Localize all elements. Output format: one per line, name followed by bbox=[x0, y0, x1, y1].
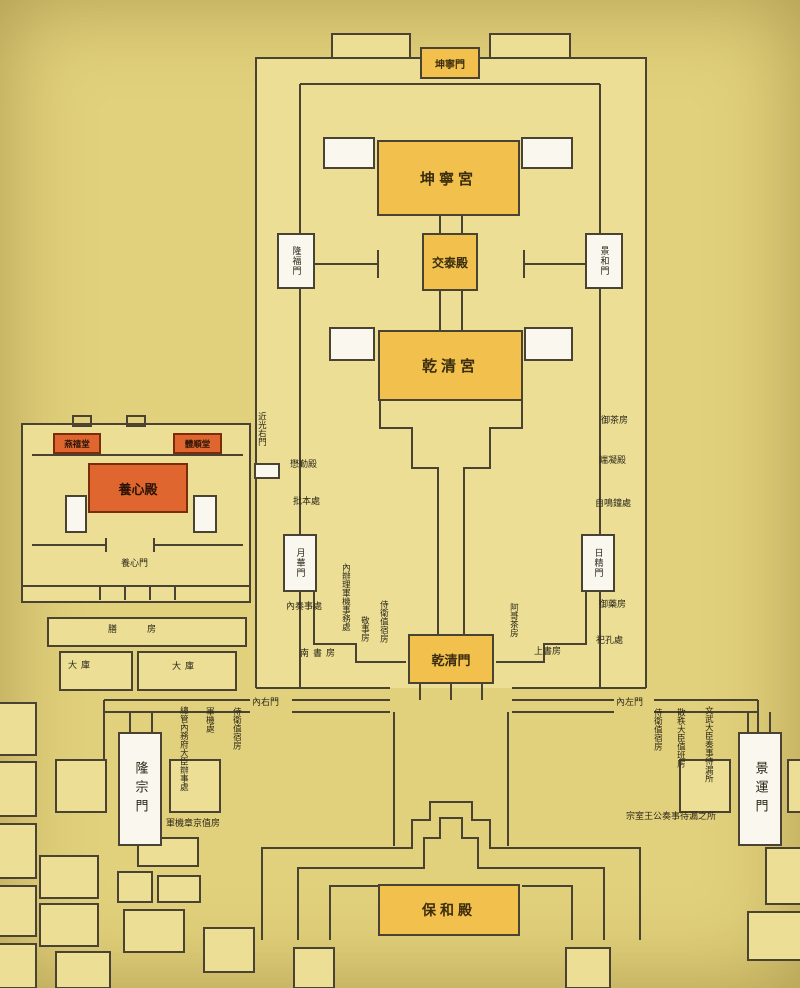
imperial-kitchen-label: 膳房 bbox=[108, 626, 186, 636]
imperial-pharmacy-label: 御藥房 bbox=[599, 601, 626, 611]
inner-memorial-office-label: 內奏事處 bbox=[286, 603, 322, 613]
chime-clock-office-label: 自鳴鐘處 bbox=[595, 500, 631, 510]
household-dept-office-label: 總管內務府大臣辦事處 bbox=[178, 706, 187, 791]
longzong-gate: 隆宗門 bbox=[118, 732, 162, 846]
kunning-gate: 坤寧門 bbox=[420, 47, 480, 79]
age-tea-room-label: 阿哥茶房 bbox=[508, 603, 517, 637]
forbidden-city-inner-court-plan: 坤寧門 坤寧宮 交泰殿 乾清宮 乾清門 保和殿 養心殿 燕禧堂 體順堂 隆福門 … bbox=[0, 0, 800, 988]
qianqing-palace: 乾清宮 bbox=[378, 330, 523, 401]
sikong-office-label: 祀孔處 bbox=[596, 637, 623, 647]
jingshi-room-label: 敬事房 bbox=[359, 616, 368, 642]
south-study-label: 南書房 bbox=[300, 650, 339, 660]
storehouse-east-label: 大庫 bbox=[172, 663, 198, 673]
baohe-hall: 保和殿 bbox=[378, 884, 520, 936]
yanxi-hall: 燕禧堂 bbox=[53, 433, 101, 454]
junji-office-label: 軍機處 bbox=[204, 707, 213, 733]
jiaotai-hall: 交泰殿 bbox=[422, 233, 478, 291]
yangxin-hall: 養心殿 bbox=[88, 463, 188, 513]
kunning-palace: 坤寧宮 bbox=[377, 140, 520, 216]
jinghe-gate: 景和門 bbox=[585, 233, 623, 289]
longfu-gate: 隆福門 bbox=[277, 233, 315, 289]
inner-left-gate-label: 內左門 bbox=[616, 699, 643, 709]
tishun-hall: 體順堂 bbox=[173, 433, 222, 454]
guard-room-west-label: 侍衛值宿房 bbox=[231, 707, 240, 750]
rijing-gate: 日精門 bbox=[581, 534, 615, 592]
duanning-hall-label: 端凝殿 bbox=[599, 457, 626, 467]
yangxin-gate-label: 養心門 bbox=[121, 560, 148, 570]
sanzhi-ministers-room-label: 散秩大臣值班房 bbox=[675, 708, 684, 768]
storehouse-west-label: 大庫 bbox=[68, 662, 94, 672]
clan-princes-waiting-label: 宗室王公奏事待漏之所 bbox=[626, 813, 716, 823]
jinguang-right-gate-label: 近光右門 bbox=[256, 412, 265, 446]
maoqin-hall-label: 懋勤殿 bbox=[290, 461, 317, 471]
jingyun-gate: 景運門 bbox=[738, 732, 782, 846]
junji-clerks-room-label: 軍機章京值房 bbox=[166, 820, 220, 830]
inner-right-gate-label: 內右門 bbox=[252, 699, 279, 709]
upper-study-label: 上書房 bbox=[534, 648, 561, 658]
military-affairs-office-label: 內辦理軍機事務處 bbox=[340, 563, 349, 631]
qianqing-gate: 乾清門 bbox=[408, 634, 494, 684]
piben-office-label: 批本處 bbox=[293, 498, 320, 508]
civil-military-waiting-label: 文武大臣奏事待漏所 bbox=[703, 706, 712, 783]
yuehua-gate: 月華門 bbox=[283, 534, 317, 592]
imperial-tea-room-label: 御茶房 bbox=[601, 417, 628, 427]
guard-room-north-label: 侍衛值宿房 bbox=[378, 600, 387, 643]
guard-room-east-label: 侍衛值宿房 bbox=[652, 708, 661, 751]
